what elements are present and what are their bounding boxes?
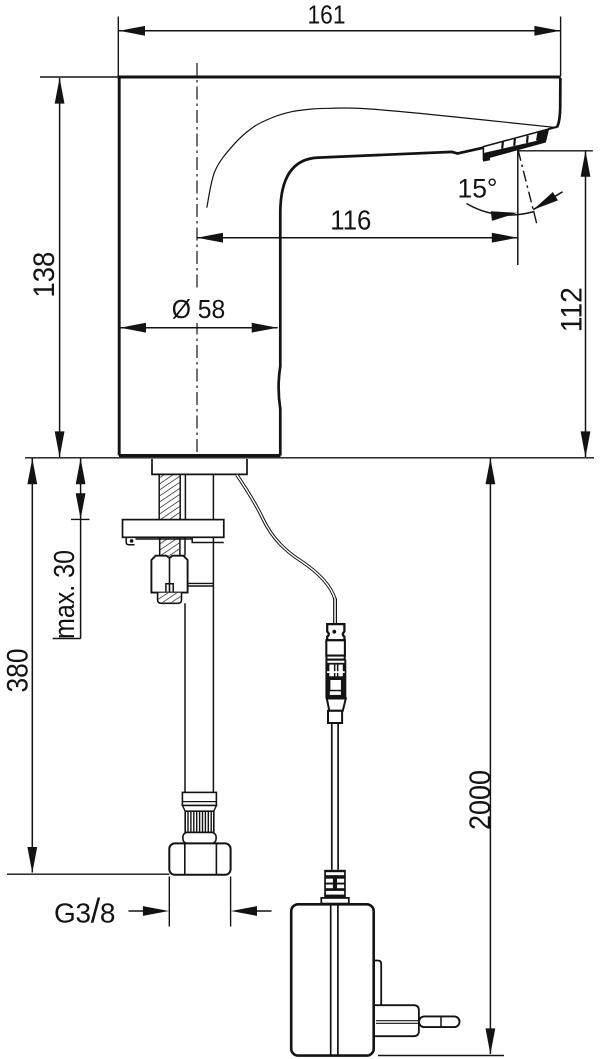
svg-text:138: 138 (28, 252, 61, 298)
svg-text:112: 112 (556, 287, 589, 332)
svg-text:380: 380 (2, 649, 35, 693)
svg-text:2000: 2000 (464, 770, 497, 830)
svg-text:161: 161 (308, 0, 346, 30)
svg-text:116: 116 (330, 205, 371, 236)
svg-text:Ø 58: Ø 58 (172, 294, 226, 324)
svg-text:max. 30: max. 30 (49, 550, 81, 639)
svg-text:15°: 15° (458, 174, 498, 204)
svg-text:G3/8: G3/8 (54, 893, 115, 931)
